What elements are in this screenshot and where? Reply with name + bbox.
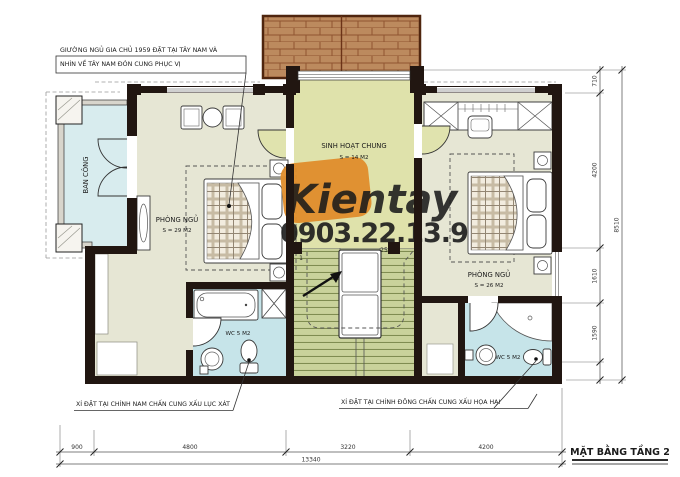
dim-right-0: 710: [592, 75, 599, 87]
dim-bottom-1: 4800: [182, 444, 197, 451]
dresser: [137, 196, 150, 250]
leader-dot-wc-right: [534, 357, 538, 361]
label-bedroom-left-area: S = 29 M2: [162, 228, 191, 234]
label-balcony: BAN CÔNG: [81, 156, 90, 193]
watermark-brand: Kientay: [286, 177, 459, 223]
bed-right: [468, 172, 552, 254]
page-title: MẶT BẰNG TẦNG 2: [570, 445, 670, 458]
balcony-column-top: [56, 96, 82, 124]
window-bedroom-left: [167, 87, 253, 93]
toilet-left-wc: [240, 340, 258, 373]
label-bedroom-left: PHÒNG NGỦ: [156, 214, 198, 224]
sitting-set: [181, 106, 244, 129]
corridor-cabinet: [427, 344, 453, 374]
toilet-right-wc: [524, 349, 552, 365]
note-wc-left-text: XÍ ĐẶT TẠI CHÍNH NAM CHẤN CUNG XẤU LỤC X…: [76, 398, 230, 408]
window-bay: [298, 71, 410, 80]
stair-step-first: 1: [299, 255, 303, 262]
label-wc-right: WC 5 M2: [496, 355, 521, 361]
label-living-area: S = 14 M2: [339, 155, 368, 161]
leader-dot-wc-left: [247, 358, 251, 362]
shaft-box: [262, 289, 286, 318]
window-bedroom-right: [437, 87, 535, 93]
note-wc-right-text: XÍ ĐẶT TẠI CHÍNH ĐÔNG CHẤN CUNG XẤU HỌA …: [341, 396, 500, 406]
bathtub: [194, 290, 258, 320]
staircase: 1 25: [294, 247, 414, 376]
note-master-bed-line2: NHÌN VỀ TÂY NAM ĐÓN CUNG PHỤC VỊ: [60, 58, 181, 68]
floor-plan-drawing: 1 25: [0, 0, 680, 477]
dim-right-3: 1590: [592, 325, 599, 340]
balcony-column-bottom: [56, 224, 82, 252]
label-wc-left: WC 5 M2: [226, 331, 251, 337]
title-block: MẶT BẰNG TẦNG 2: [570, 445, 670, 464]
dim-right-1: 4200: [592, 162, 599, 177]
label-living: SINH HOẠT CHUNG: [321, 142, 386, 150]
dim-right-2: 1610: [592, 268, 599, 283]
closet-west: [95, 254, 108, 334]
dim-bottom-0: 900: [71, 444, 83, 451]
watermark-phone: 0903.22.13.9: [280, 218, 468, 249]
bed-left: [204, 179, 288, 263]
stair-landing: [339, 250, 381, 338]
dim-bottom-3: 4200: [478, 444, 493, 451]
dim-bottom-total: 13340: [301, 457, 320, 464]
label-bedroom-right: PHÒNG NGỦ: [468, 269, 510, 279]
dim-right-total: 8510: [614, 217, 621, 232]
closet-southwest: [97, 342, 137, 375]
leader-dot-bed: [227, 204, 231, 208]
stool: [468, 116, 492, 138]
dim-bottom-2: 3220: [340, 444, 355, 451]
floor-plan-page: 1 25: [0, 0, 680, 477]
note-master-bed-line1: GIƯỜNG NGỦ GIA CHỦ 1959 ĐẶT TẠI TÂY NAM …: [60, 44, 218, 54]
label-bedroom-right-area: S = 26 M2: [474, 283, 503, 289]
window-east: [553, 252, 561, 302]
